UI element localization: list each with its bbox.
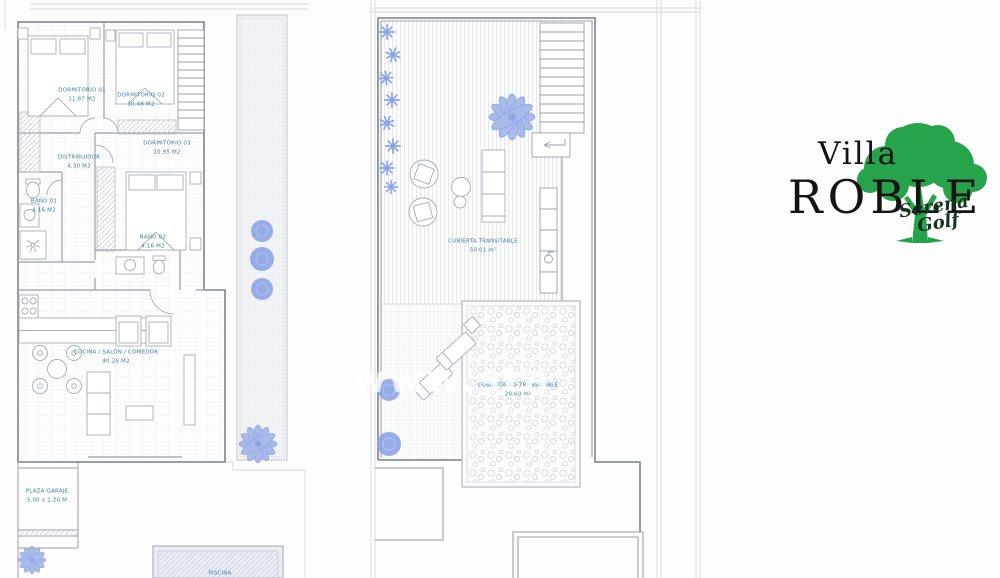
palm-tree-small-icon (18, 546, 46, 574)
label-dormitorio-03: DORMITORIO 03 10.95 M2 (143, 140, 191, 159)
stairs-icon-roof (532, 23, 584, 157)
label-bano-01: BAÑO 01 4.16 M2 (31, 198, 57, 217)
logo-villa-text: Villa (818, 136, 898, 172)
floorplan-linework (0, 0, 1000, 578)
label-plaza-garaje: PLAZA GARAJE 5.00 x 2.20 M (26, 488, 68, 507)
roof-group (375, 18, 643, 578)
label-distribuidor: DISTRIBUIDOR 4.30 M2 (58, 154, 100, 173)
label-cubierta-transitable: CUBIERTA TRANSITABLE 50.01 m² (448, 238, 518, 257)
stairs-icon (178, 30, 204, 130)
label-dormitorio-02: DORMITORIO 02 10.48 M2 (117, 92, 165, 111)
label-bano-02: BAÑO 02 4.16 M2 (140, 234, 166, 253)
label-piscina: PISCINA (208, 569, 231, 578)
label-cubierta-no-transitable: CUBIERTA NO TRANSITABLE 20.60 m² (478, 382, 558, 401)
label-dormitorio-01: DORMITORIO 01 11.87 M2 (58, 87, 106, 106)
brand-logo: Villa ROBLE Serena Golf (788, 118, 1000, 252)
planter-boxes (540, 188, 557, 293)
label-cocina-salon: COCINA / SALÓN / COMEDOR 40.26 M2 (74, 349, 158, 368)
floorplan-page: DORMITORIO 01 11.87 M2 DORMITORIO 02 10.… (0, 0, 1000, 578)
bush-icon (250, 220, 274, 300)
